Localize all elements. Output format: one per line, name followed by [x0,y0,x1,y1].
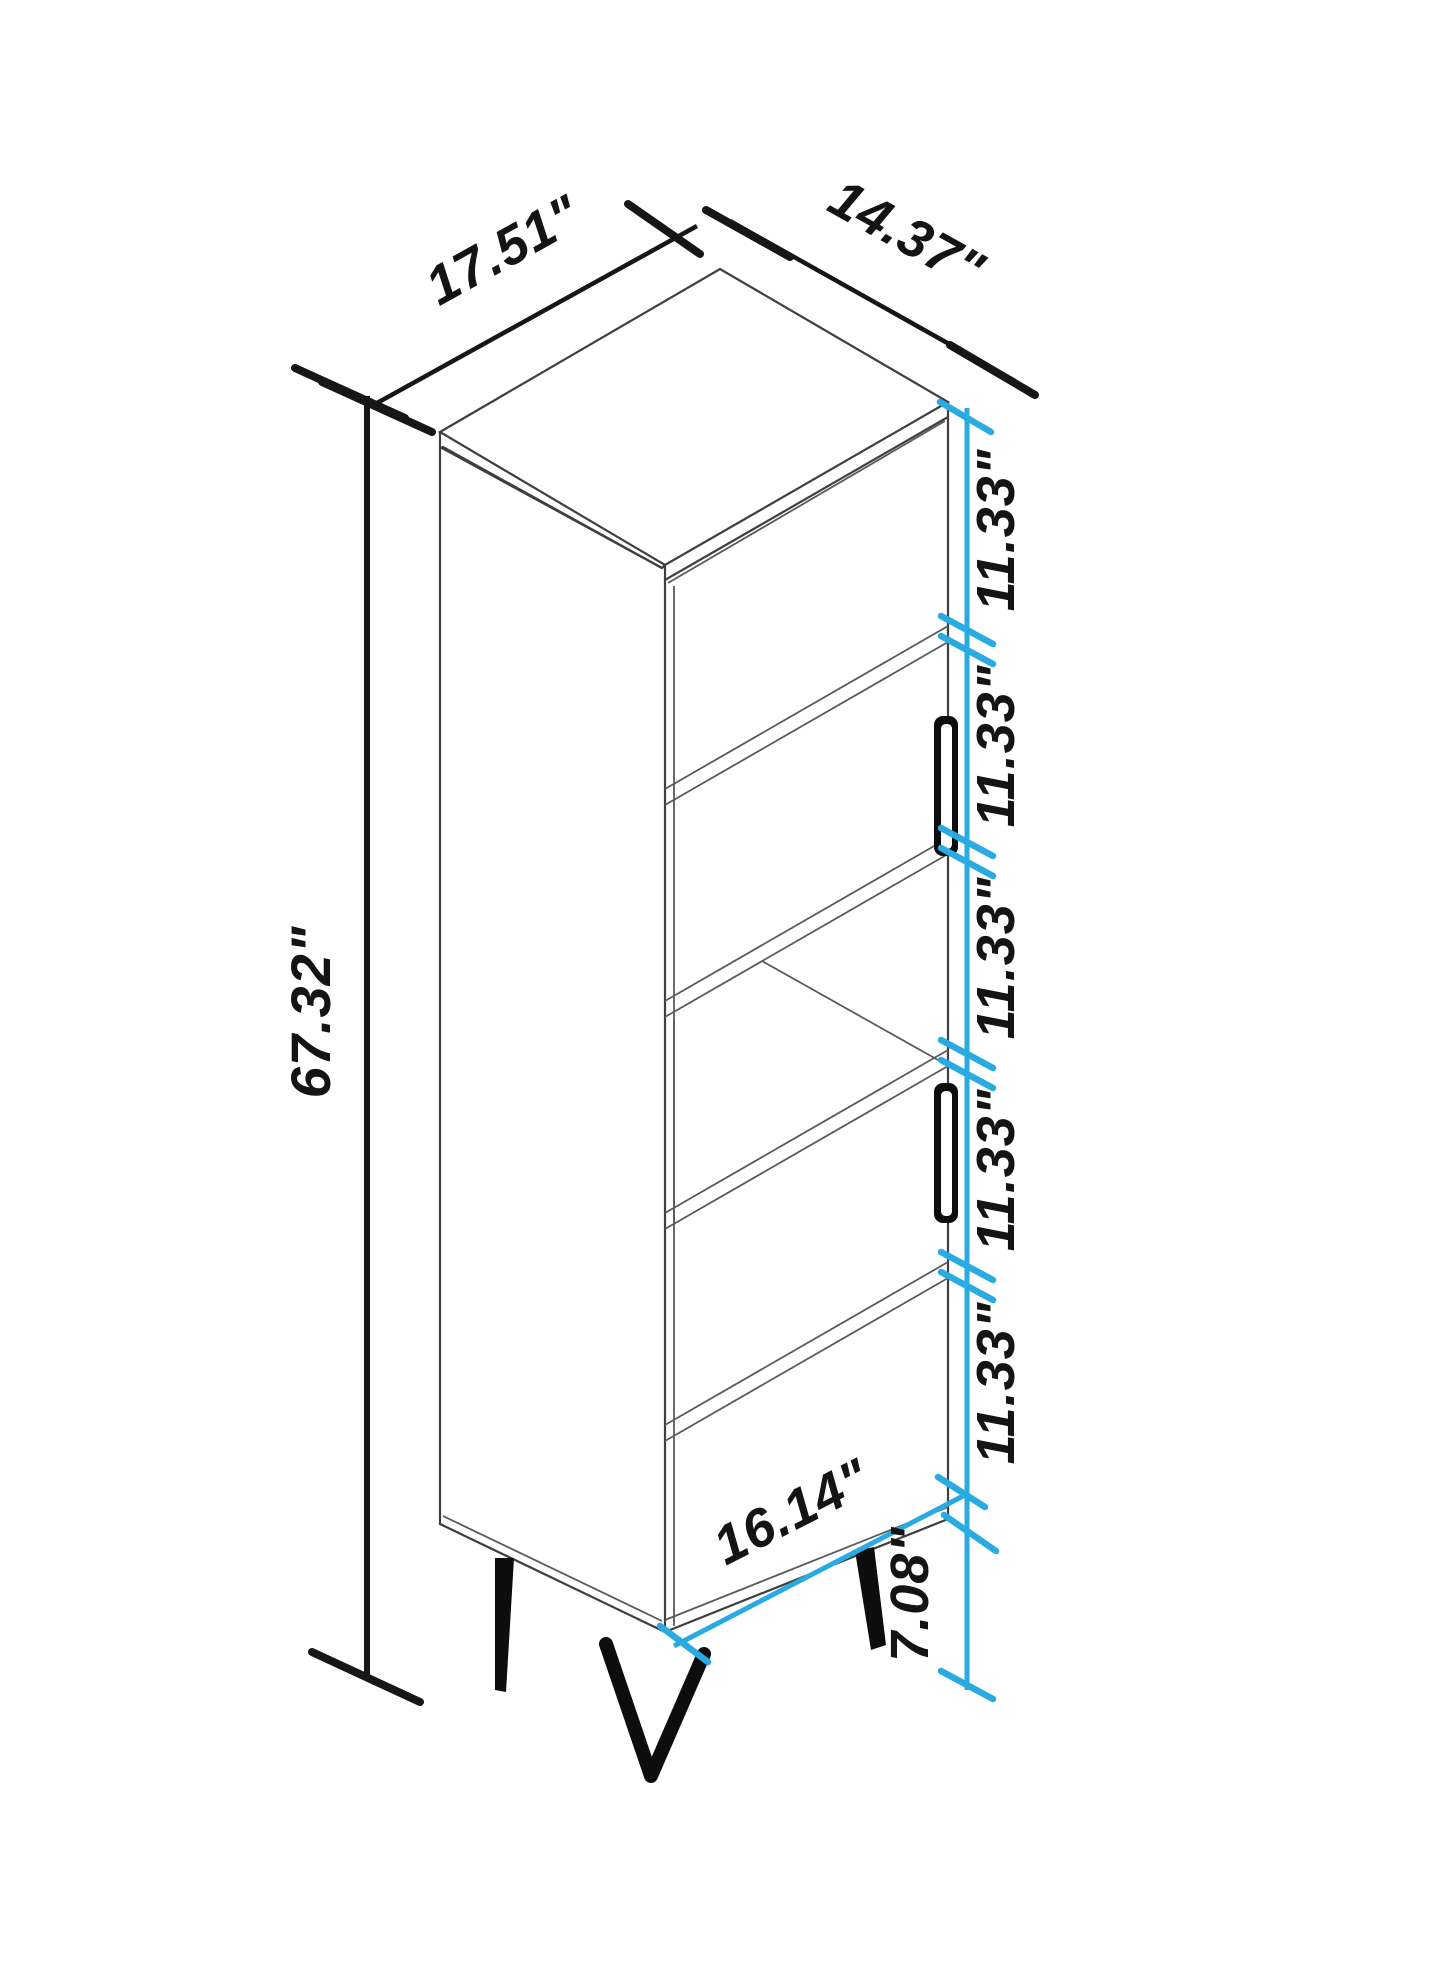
cabinet-edges [440,417,948,1632]
cabinet-shelf-dividers [665,626,948,1441]
front-hairpin-leg [606,1644,704,1776]
dimension-width: 17.51" [322,183,700,432]
back-left-leg [495,1558,514,1692]
cabinet-top-face [440,269,948,583]
section-label-2: 11.33" [966,664,1026,827]
dimension-depth: 14.37" [706,168,1035,395]
dimension-diagram: 17.51" 14.37" 67.32" [0,0,1445,1975]
height-label: 67.32" [279,925,342,1098]
cabinet-legs [495,1547,886,1776]
depth-label: 14.37" [819,168,994,302]
diagram-canvas: 17.51" 14.37" 67.32" [0,0,1445,1975]
door-handle-bottom [934,1083,958,1223]
leg-height-label: 7.08" [880,1526,940,1662]
section-label-1: 11.33" [966,448,1026,611]
section-label-4: 11.33" [966,1088,1026,1251]
dimension-height: 67.32" [279,368,420,1702]
section-label-5: 11.33" [966,1301,1026,1464]
dimension-leg-height: 7.08" [880,1526,940,1662]
section-label-3: 11.33" [966,876,1026,1039]
